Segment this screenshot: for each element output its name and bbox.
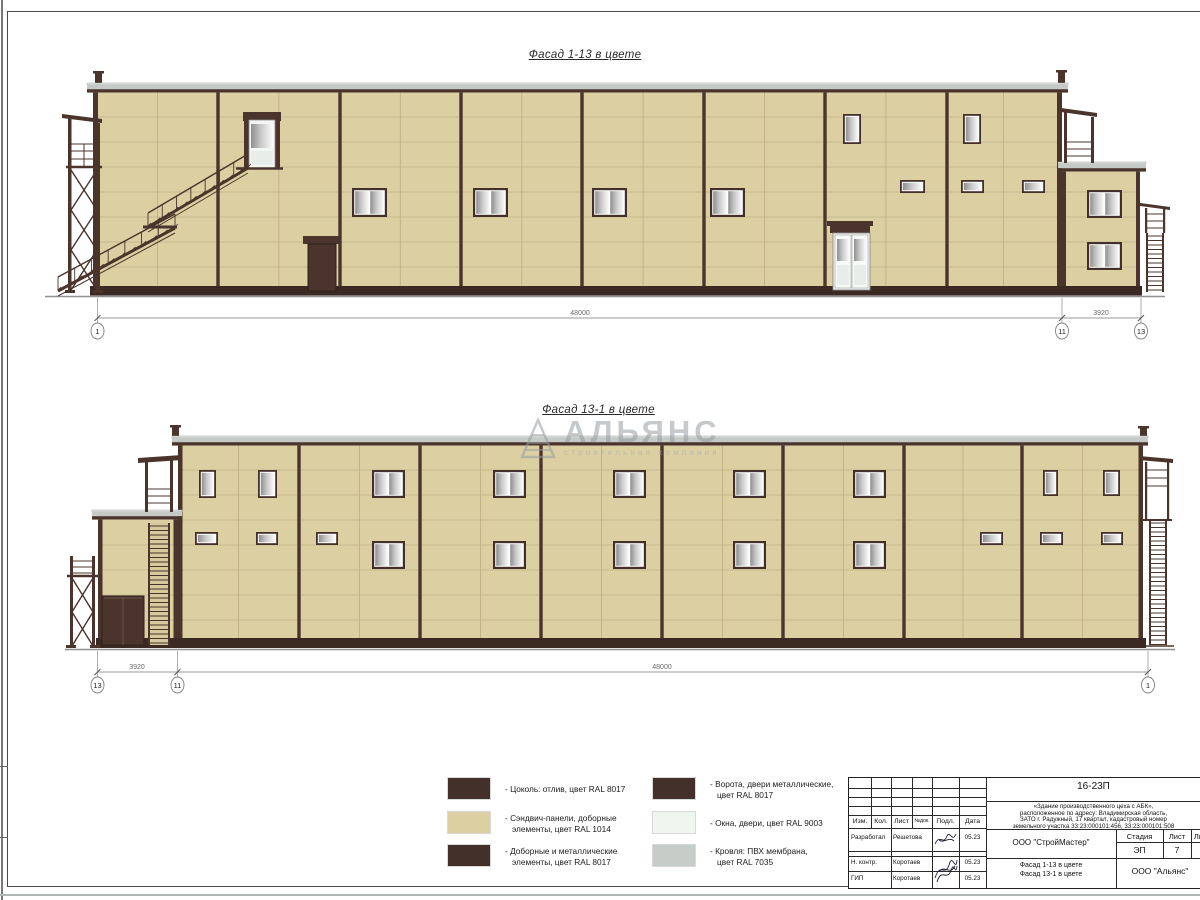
fold-mark-1 xyxy=(0,766,8,767)
signature xyxy=(933,830,958,850)
dim-bottom-main: 48000 xyxy=(652,664,672,671)
tb-person-cell: Коротаев xyxy=(893,875,931,882)
window xyxy=(980,532,1003,545)
window xyxy=(963,114,981,144)
tb-sheets-value: 1 xyxy=(1191,845,1200,855)
fold-mark-2 xyxy=(0,837,8,838)
tb-sheets-label: Листов xyxy=(1191,832,1200,841)
window xyxy=(1040,532,1063,545)
window xyxy=(256,532,278,545)
svg-text:13: 13 xyxy=(1137,327,1145,336)
screenshot-root: { "sheet": { "facades": [ {"title": "Фас… xyxy=(0,0,1200,900)
tb-stage-label: Стадия xyxy=(1116,832,1163,841)
svg-text:1: 1 xyxy=(1146,681,1150,690)
svg-text:11: 11 xyxy=(174,681,182,690)
tb-person-cell: Решетова xyxy=(893,834,931,841)
tb-header-col: Подл. xyxy=(932,818,960,825)
window xyxy=(1087,190,1122,218)
legend-item-label: - Ворота, двери металлические,цвет RAL 8… xyxy=(710,779,833,800)
window xyxy=(733,541,766,569)
window xyxy=(258,470,277,498)
dim-top-side: 3920 xyxy=(1093,310,1109,317)
tb-person-cell: ГИП xyxy=(851,875,891,882)
window xyxy=(372,541,405,569)
signature xyxy=(933,854,958,886)
sandwich-panel-swatch xyxy=(448,812,490,833)
tb-person-cell: 05.23 xyxy=(959,859,986,866)
window xyxy=(493,470,526,498)
window xyxy=(195,532,218,545)
tb-sheet-value: 7 xyxy=(1163,845,1191,855)
legend-item-label: - Цоколь: отлив, цвет RAL 8017 xyxy=(505,784,625,795)
window xyxy=(1087,242,1122,270)
window xyxy=(1043,470,1058,496)
windows-doors-swatch xyxy=(653,812,695,833)
facade-drawings: 48000 3920 1 11 13 3920 48000 13 11 1 xyxy=(0,0,1200,766)
window xyxy=(316,532,338,545)
tb-doc-number: 16-23П xyxy=(986,781,1200,792)
facade-1-13-drawing xyxy=(45,70,1170,297)
dim-top-main: 48000 xyxy=(570,310,590,317)
window xyxy=(853,541,886,569)
tb-person-cell: Коротаев xyxy=(893,859,931,866)
roof-membrane-swatch xyxy=(653,845,695,866)
window xyxy=(199,470,216,498)
window xyxy=(1103,470,1120,496)
tb-org: ООО "Альянс" xyxy=(1116,866,1200,876)
dim-bottom-side: 3920 xyxy=(129,664,145,671)
facade-13-1-drawing xyxy=(65,425,1175,650)
tb-company: ООО "СтройМастер" xyxy=(986,838,1116,847)
tb-subject-line: Фасад 1-13 в цвете xyxy=(986,862,1116,869)
plinth-swatch xyxy=(448,778,490,799)
tb-person-cell: Разработал xyxy=(851,834,891,841)
tb-subject-line: Фасад 13-1 в цвете xyxy=(986,871,1116,878)
window xyxy=(1022,180,1045,193)
gates-doors-swatch xyxy=(653,778,695,799)
tb-stage-value: ЭП xyxy=(1116,845,1163,855)
window xyxy=(352,188,387,217)
window xyxy=(961,180,984,193)
window xyxy=(372,470,405,498)
window xyxy=(473,188,508,217)
window xyxy=(613,541,646,569)
window xyxy=(710,188,745,217)
window xyxy=(592,188,627,217)
svg-text:1: 1 xyxy=(95,327,99,336)
legend-item-label: - Окна, двери, цвет RAL 9003 xyxy=(710,818,823,829)
window xyxy=(733,470,766,498)
title-block: 16-23П «Здание производственного цеха с … xyxy=(848,777,1200,889)
window xyxy=(613,470,646,498)
window xyxy=(1101,532,1123,545)
tb-person-cell: 05.23 xyxy=(959,834,986,841)
legend-item-label: - Доборные и металлическиеэлементы, цвет… xyxy=(505,846,617,867)
window xyxy=(493,541,526,569)
legend-item-label: - Сэндвич-панели, доборныеэлементы, цвет… xyxy=(505,813,617,834)
tb-header-col: Дата xyxy=(959,818,987,825)
tb-person-cell: Н. контр. xyxy=(851,859,891,866)
svg-text:11: 11 xyxy=(1058,327,1066,336)
window xyxy=(900,180,925,193)
window xyxy=(853,470,886,498)
legend: - Цоколь: отлив, цвет RAL 8017- Сэндвич-… xyxy=(448,770,888,880)
svg-text:13: 13 xyxy=(93,681,101,690)
tb-person-cell: 05.23 xyxy=(959,875,986,882)
legend-item-label: - Кровля: ПВХ мембрана,цвет RAL 7035 xyxy=(710,846,808,867)
window xyxy=(843,114,861,144)
trim-metal-swatch xyxy=(448,845,490,866)
sheet-bottom-edge xyxy=(0,894,1200,896)
tb-sheet-label: Лист xyxy=(1163,832,1191,841)
